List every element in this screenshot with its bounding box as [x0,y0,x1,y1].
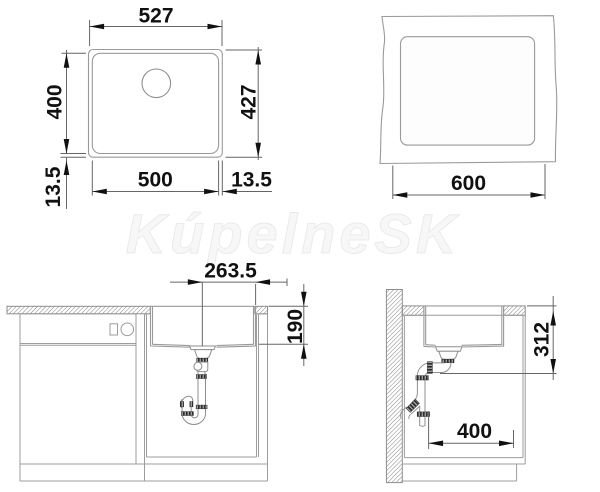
svg-text:312: 312 [531,322,554,357]
svg-text:500: 500 [138,169,173,192]
svg-text:13.5: 13.5 [231,169,272,192]
svg-text:400: 400 [44,84,67,119]
svg-text:13.5: 13.5 [42,166,65,207]
svg-text:400: 400 [457,420,492,443]
svg-text:600: 600 [451,172,486,195]
svg-text:190: 190 [284,309,307,344]
svg-text:KúpelneSK: KúpelneSK [126,202,461,265]
svg-text:263.5: 263.5 [204,259,257,282]
svg-text:427: 427 [238,84,261,119]
svg-text:527: 527 [138,5,173,28]
